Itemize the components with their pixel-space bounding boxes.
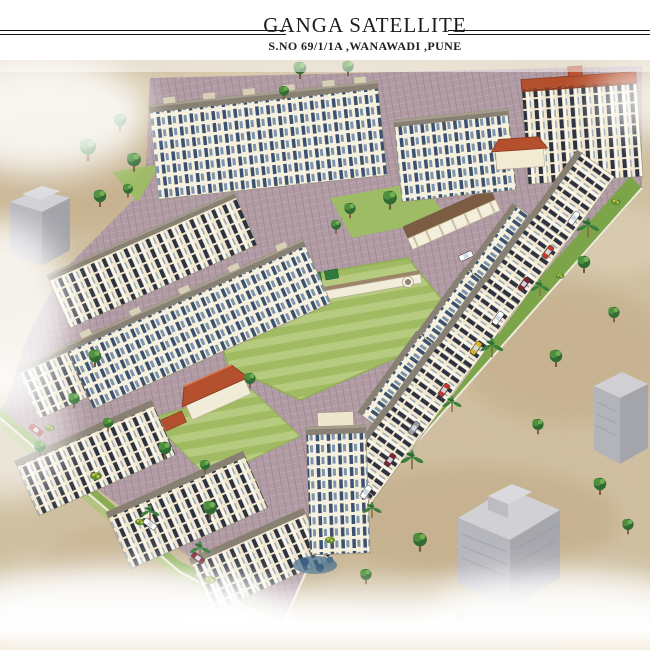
header: GANGA SATELLITE S.NO 69/1/1A ,WANAWADI ,… (0, 0, 650, 60)
brochure-page: GANGA SATELLITE S.NO 69/1/1A ,WANAWADI ,… (0, 0, 650, 650)
gazebo (403, 277, 414, 288)
project-title: GANGA SATELLITE (263, 13, 466, 38)
neighbour-building-east (594, 372, 648, 464)
header-rule-right (448, 30, 650, 35)
site-rendering (0, 60, 650, 650)
project-address: S.NO 69/1/1A ,WANAWADI ,PUNE (268, 39, 461, 54)
header-rule-left (0, 30, 286, 35)
gatehouse (491, 136, 549, 170)
building-tall-tower (305, 411, 370, 555)
